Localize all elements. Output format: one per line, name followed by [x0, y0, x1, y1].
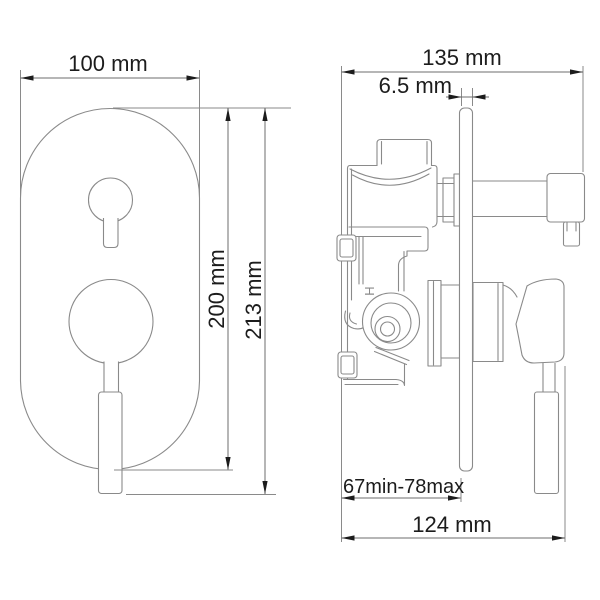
cartridge-screw: [375, 317, 400, 342]
dim-front-width: 100 mm: [21, 51, 200, 198]
outlet-elbow: [547, 174, 585, 223]
front-diverter-knob: [89, 178, 133, 222]
arrowhead: [473, 94, 486, 99]
arrowhead: [262, 108, 267, 121]
side-wall-plate: [460, 108, 473, 471]
front-handle-rosette: [69, 280, 153, 364]
arrowhead: [225, 457, 230, 470]
dim-plate-thickness: 6.5 mm: [379, 73, 489, 106]
dim-mounting-depth: 67min-78max: [342, 476, 465, 502]
saddle-curve: [350, 168, 431, 179]
lever-grip: [535, 392, 559, 494]
arrowhead: [262, 481, 267, 494]
arrowhead: [552, 535, 565, 540]
front-lever-grip: [99, 392, 123, 494]
overall-depth-label: 124 mm: [412, 512, 491, 537]
arrowhead: [21, 75, 34, 80]
arrowhead: [570, 69, 583, 74]
lever-stem: [543, 363, 555, 392]
valve-body: [337, 140, 460, 386]
body-left-edge: [348, 166, 351, 380]
mounting-depth-label: 67min-78max: [343, 476, 464, 498]
front-view: [21, 109, 200, 494]
front-overall-height-label: 213 mm: [241, 260, 266, 339]
elbow-down-stub: [564, 222, 580, 246]
technical-drawing-page: 100 mm 200 mm 213 mm: [0, 0, 600, 600]
side-view: H: [337, 66, 585, 542]
dim-overall-depth: 124 mm: [342, 366, 566, 542]
arrowhead: [187, 75, 200, 80]
front-width-label: 100 mm: [68, 51, 147, 76]
arrowhead: [342, 535, 355, 540]
mixer-dimension-drawing: 100 mm 200 mm 213 mm: [0, 0, 600, 600]
outlet-pipe: [473, 174, 585, 247]
dim-front-plate-height: 200 mm: [114, 108, 233, 470]
lever-body: [516, 279, 564, 363]
top-inlet-stub: [377, 140, 432, 167]
mounting-tab-inner: [340, 239, 353, 257]
front-lever-stem: [104, 362, 119, 393]
connector-flange: [454, 174, 460, 226]
plate-thickness-label: 6.5 mm: [379, 73, 452, 98]
hub-cylinder-back: [441, 285, 460, 358]
arrowhead: [342, 69, 355, 74]
dim-front-overall-height: 213 mm: [126, 108, 276, 495]
cartridge-flange: [428, 281, 441, 367]
front-dimensions: 100 mm 200 mm 213 mm: [21, 51, 292, 495]
hub-collar-curve: [503, 285, 517, 297]
side-depth-label: 135 mm: [422, 45, 501, 70]
side-handle: [473, 279, 564, 494]
mounting-tab-inner: [341, 356, 354, 374]
front-diverter-stem: [104, 218, 119, 248]
hot-marking-label: H: [362, 286, 377, 295]
body-bottom-edge: [344, 380, 405, 386]
front-plate-height-label: 200 mm: [204, 249, 229, 328]
arrowhead: [225, 108, 230, 121]
